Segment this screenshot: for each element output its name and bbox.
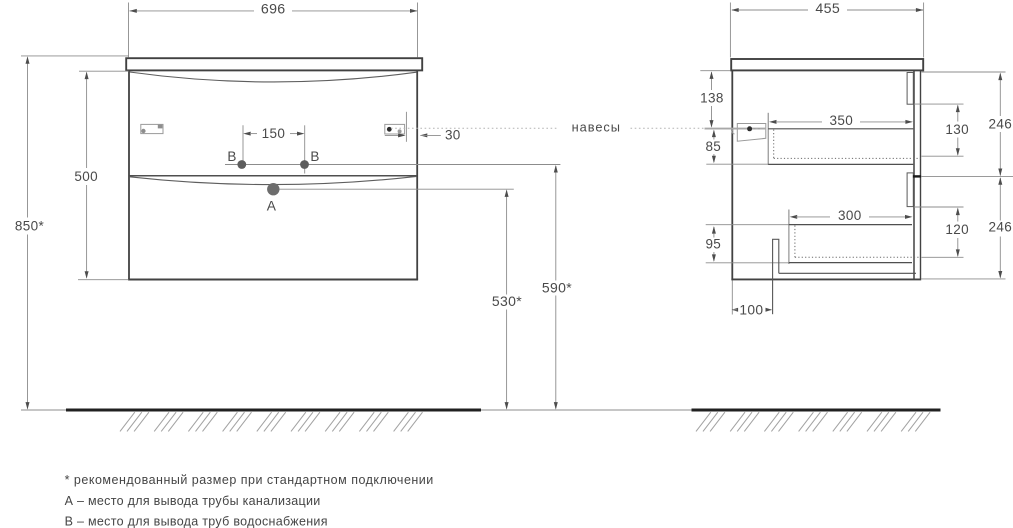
svg-text:696: 696 xyxy=(261,2,286,18)
svg-text:530*: 530* xyxy=(492,293,522,309)
svg-text:246: 246 xyxy=(989,220,1013,235)
svg-text:120: 120 xyxy=(945,222,969,237)
svg-text:455: 455 xyxy=(815,1,840,17)
svg-text:навесы: навесы xyxy=(572,120,621,135)
svg-text:B: B xyxy=(310,149,319,164)
svg-text:B: B xyxy=(227,149,236,164)
svg-text:150: 150 xyxy=(262,126,286,141)
svg-text:А – место для вывода трубы кан: А – место для вывода трубы канализации xyxy=(65,494,321,508)
svg-text:95: 95 xyxy=(705,237,721,252)
svg-text:В – место для вывода труб водо: В – место для вывода труб водоснабжения xyxy=(65,514,328,528)
svg-text:A: A xyxy=(267,199,277,214)
svg-text:30: 30 xyxy=(445,128,461,143)
svg-text:350: 350 xyxy=(830,113,854,128)
svg-text:* рекомендованный размер при с: * рекомендованный размер при стандартном… xyxy=(65,473,434,487)
svg-text:130: 130 xyxy=(945,122,969,137)
svg-text:100: 100 xyxy=(739,302,763,317)
svg-text:300: 300 xyxy=(838,208,862,223)
svg-text:246: 246 xyxy=(989,117,1013,132)
svg-text:590*: 590* xyxy=(542,280,572,296)
svg-text:850*: 850* xyxy=(15,219,45,234)
svg-text:85: 85 xyxy=(705,139,721,154)
svg-text:138: 138 xyxy=(700,90,724,105)
svg-text:500: 500 xyxy=(74,169,98,184)
